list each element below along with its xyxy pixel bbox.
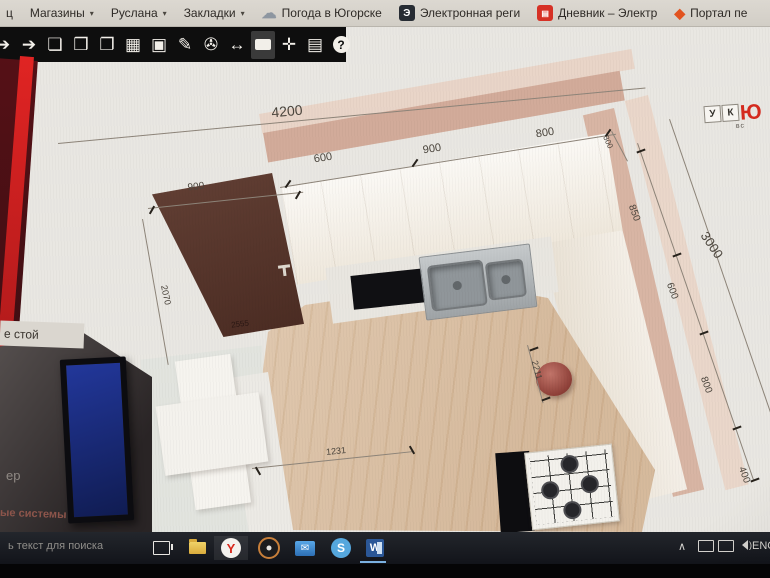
bookmark-label: Магазины	[30, 6, 85, 20]
active-app-indicator	[360, 561, 386, 563]
sink-bowl-small	[485, 258, 527, 300]
browser-bookmarks-bar: ц Магазины▾Руслана▾Закладки▾☁Погода в Юг…	[0, 0, 770, 27]
planner-page: 4200900600900800300850600300080040020702…	[0, 27, 770, 565]
monitor-bezel	[0, 564, 770, 578]
e-icon: Э	[399, 5, 415, 21]
search-input[interactable]: ь текст для поиска	[8, 540, 103, 552]
diamond-icon: ◆	[674, 5, 685, 22]
entry-door[interactable]	[152, 173, 304, 337]
yandex-browser-button[interactable]: Y	[214, 536, 248, 560]
gas-hob[interactable]	[524, 444, 620, 531]
bookmark-label: Руслана	[111, 6, 158, 20]
word-icon: W	[366, 539, 384, 557]
double-sink[interactable]	[419, 243, 538, 320]
arrow-left-partial-icon[interactable]: ➔	[0, 31, 15, 59]
cloud-icon: ☁	[262, 4, 277, 22]
bookmark-pogoda[interactable]: ☁Погода в Югорске	[262, 4, 382, 22]
monitor-icon[interactable]	[718, 540, 734, 552]
folder-icon	[189, 542, 206, 554]
help-icon[interactable]: ?	[329, 31, 353, 59]
bookmark-label: Дневник – Электр	[558, 6, 657, 20]
bookmark-label: Закладки	[184, 6, 236, 20]
print-icon[interactable]: ▦	[121, 31, 145, 59]
skype-button[interactable]: S	[324, 536, 358, 560]
logo-tile: У	[703, 105, 721, 123]
save-icon[interactable]: ❐	[95, 31, 119, 59]
tray-chevron-icon[interactable]: ∧	[678, 540, 686, 553]
drain-icon	[501, 275, 511, 285]
bookmark-dnevnik[interactable]: ▤Дневник – Электр	[537, 5, 657, 21]
bookmark-label: Электронная реги	[420, 6, 520, 20]
chevron-down-icon: ▾	[241, 9, 245, 18]
resize-horizontal-icon[interactable]: ↔	[225, 31, 249, 59]
bookmark-magaziny[interactable]: Магазины▾	[30, 6, 94, 20]
sink-bowl-large	[427, 259, 488, 311]
dimension-label: 800	[535, 126, 555, 141]
dimension-tick	[149, 206, 155, 215]
mail-icon: ✉	[295, 541, 315, 556]
expand-icon[interactable]: ✛	[277, 31, 301, 59]
camera-app-button[interactable]	[252, 536, 286, 560]
dimension-tick	[750, 478, 759, 483]
yandex-icon: Y	[221, 538, 241, 558]
ring-icon	[258, 537, 280, 559]
question-mark-icon: ?	[333, 36, 350, 53]
drain-icon	[452, 281, 462, 291]
new-document-icon[interactable]: ❏	[43, 31, 67, 59]
skype-icon: S	[331, 538, 351, 558]
app-toolbar: ➔➔❏❒❐▦▣✎✇↔✛▤?	[0, 27, 346, 62]
word-button[interactable]: W	[358, 536, 392, 560]
task-view-button[interactable]	[144, 536, 178, 560]
white-table-part[interactable]	[156, 392, 269, 476]
file-explorer-button[interactable]	[180, 536, 214, 560]
logo-subtext: вс	[736, 122, 746, 130]
bookmark-label: Портал пе	[690, 6, 747, 20]
task-view-icon	[153, 541, 170, 555]
chevron-down-icon: ▾	[163, 9, 167, 18]
speaker-icon[interactable]: )	[737, 540, 752, 550]
pencil-icon[interactable]: ✎	[173, 31, 197, 59]
comment-icon[interactable]	[251, 31, 275, 59]
camera-icon[interactable]: ✇	[199, 31, 223, 59]
bookmark-label: Погода в Югорске	[282, 6, 382, 20]
windows-taskbar: ь текст для поиска Y ✉ S W ∧ ) ENG	[0, 532, 770, 564]
bookmark-ruslana[interactable]: Руслана▾	[111, 6, 167, 20]
round-stool[interactable]	[536, 362, 572, 396]
dimension-label: 900	[422, 142, 442, 157]
arrow-right-icon[interactable]: ➔	[17, 31, 41, 59]
display-icon[interactable]	[698, 540, 714, 552]
app-logo: У К Ю вс	[703, 104, 739, 123]
reddoc-icon: ▤	[537, 5, 553, 21]
dimension-line	[142, 219, 169, 365]
language-indicator[interactable]: ENG	[752, 540, 770, 552]
logo-tile: К	[721, 104, 739, 122]
bookmark-elektronnaya[interactable]: ЭЭлектронная реги	[399, 5, 520, 21]
image-icon[interactable]: ▣	[147, 31, 171, 59]
bookmark-portal[interactable]: ◆Портал пе	[674, 5, 747, 22]
chevron-down-icon: ▾	[90, 9, 94, 18]
open-folder-icon[interactable]: ❒	[69, 31, 93, 59]
dimension-label: 3000	[698, 229, 727, 261]
properties-icon[interactable]: ▤	[303, 31, 327, 59]
bookmark-zakladki[interactable]: Закладки▾	[184, 6, 245, 20]
speech-bubble-icon	[255, 39, 271, 50]
bookmark-edge-fragment: ц	[6, 6, 13, 20]
dimension-label: 2070	[159, 284, 173, 306]
mail-button[interactable]: ✉	[288, 536, 322, 560]
monitor-screen: ц Магазины▾Руслана▾Закладки▾☁Погода в Юг…	[0, 0, 770, 578]
